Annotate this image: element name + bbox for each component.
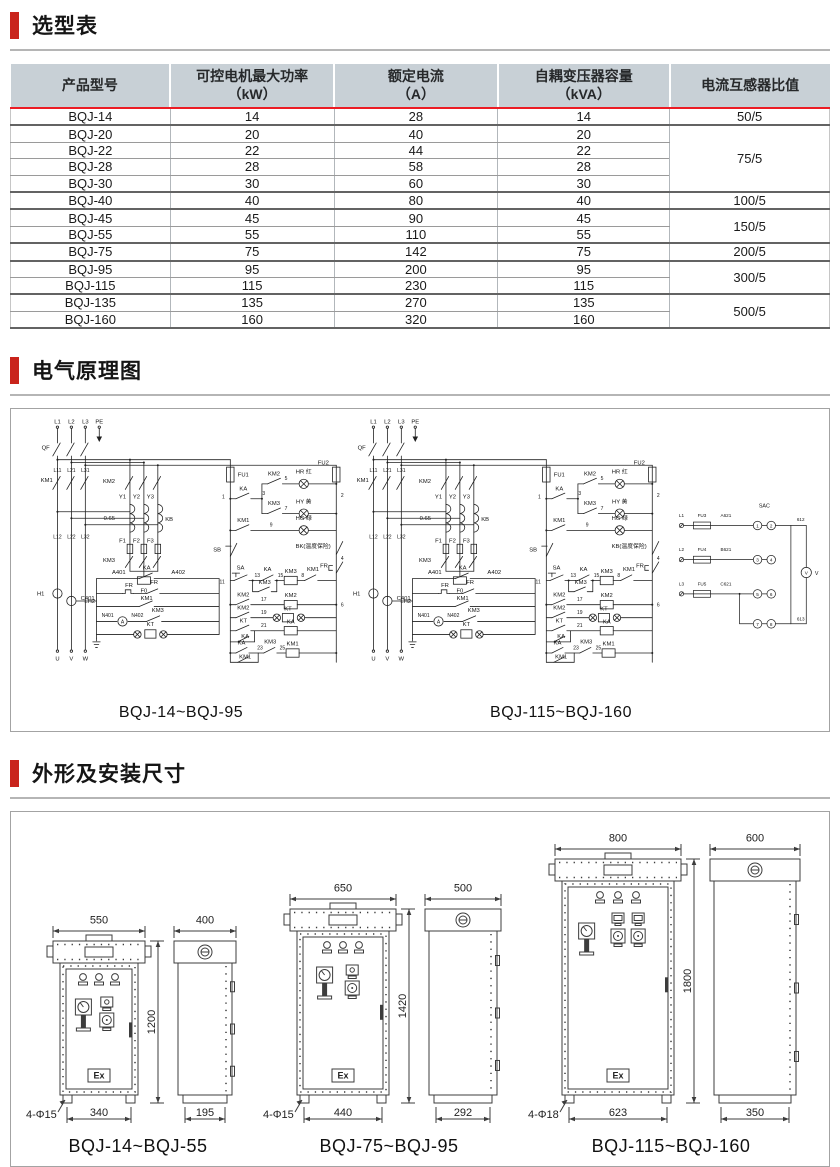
svg-text:KA: KA [557, 634, 565, 640]
svg-text:L1: L1 [679, 513, 685, 518]
cell-capacity: 55 [498, 226, 670, 243]
svg-text:FU5: FU5 [698, 581, 707, 586]
svg-text:FU1: FU1 [238, 473, 249, 479]
cell-capacity: 95 [498, 261, 670, 278]
svg-text:1200: 1200 [146, 1010, 158, 1034]
cell-capacity: 30 [498, 175, 670, 192]
svg-text:6: 6 [770, 592, 773, 597]
svg-text:340: 340 [90, 1107, 108, 1119]
svg-text:623: 623 [609, 1107, 627, 1119]
svg-text:L1: L1 [370, 420, 377, 426]
svg-text:KM3: KM3 [103, 558, 115, 564]
svg-text:KA: KA [554, 641, 562, 647]
cell-capacity: 45 [498, 209, 670, 226]
cell-power: 30 [170, 175, 334, 192]
schematic-caption-right: BQJ-115~BQJ-160 [411, 704, 711, 722]
table-row: BQJ-40 40 80 40 100/5 [11, 192, 830, 209]
svg-text:Y2: Y2 [449, 495, 456, 501]
svg-text:2: 2 [770, 524, 773, 529]
svg-text:2: 2 [657, 493, 660, 499]
svg-text:19: 19 [261, 610, 267, 616]
col-header-capacity: 自耦变压器容量（kVA） [498, 64, 670, 108]
svg-text:KM3: KM3 [468, 608, 480, 614]
svg-text:4-Φ15: 4-Φ15 [26, 1109, 57, 1121]
cell-model: BQJ-115 [11, 277, 171, 294]
svg-text:L12: L12 [53, 535, 62, 541]
svg-text:KM2: KM2 [103, 479, 115, 485]
meter-row-3: L3 FU5 C621 5 6 [679, 581, 776, 598]
svg-text:Y3: Y3 [147, 495, 154, 501]
svg-text:195: 195 [196, 1107, 214, 1119]
svg-text:KM2: KM2 [237, 605, 249, 611]
cell-current: 40 [334, 125, 498, 142]
svg-text:PE: PE [95, 420, 103, 426]
svg-text:KM3: KM3 [259, 580, 271, 586]
svg-text:Y2: Y2 [133, 495, 140, 501]
cell-capacity: 135 [498, 294, 670, 311]
cell-power: 40 [170, 192, 334, 209]
svg-text:3: 3 [578, 491, 581, 497]
starter-schematic: L1 L2 L3 PE QF L11 L21 L31 KM1 KM2 Y1 Y2… [353, 415, 669, 694]
svg-text:440: 440 [334, 1107, 352, 1119]
svg-text:8: 8 [617, 573, 620, 579]
svg-text:C401: C401 [81, 596, 95, 602]
cell-model: BQJ-14 [11, 108, 171, 125]
svg-text:13: 13 [570, 573, 576, 579]
svg-text:KM1: KM1 [287, 642, 299, 648]
selection-table-head: 产品型号 可控电机最大功率（kW） 额定电流（A） 自耦变压器容量（kVA） 电… [11, 64, 830, 108]
cell-power: 28 [170, 159, 334, 175]
svg-text:L31: L31 [397, 468, 406, 474]
red-bar-icon [10, 12, 19, 39]
svg-text:KA: KA [143, 565, 151, 571]
svg-text:B621: B621 [721, 547, 732, 552]
svg-text:A402: A402 [487, 570, 501, 576]
section-dimensions: 外形及安装尺寸 550Ex12003404-Φ15400195 BQJ-14~B… [10, 756, 830, 1167]
svg-text:800: 800 [609, 833, 627, 845]
svg-text:Y1: Y1 [119, 495, 126, 501]
svg-text:KA: KA [238, 641, 246, 647]
svg-text:4: 4 [657, 556, 660, 562]
svg-text:613: 613 [797, 616, 805, 621]
svg-text:HR 红: HR 红 [296, 468, 312, 476]
svg-text:HY 黄: HY 黄 [612, 497, 628, 505]
svg-text:FR: FR [320, 564, 328, 570]
cell-model: BQJ-22 [11, 142, 171, 158]
svg-text:A621: A621 [721, 513, 732, 518]
table-row: BQJ-95 95 200 95 300/5 [11, 261, 830, 278]
table-row: BQJ-75 75 142 75 200/5 [11, 243, 830, 260]
cell-ratio: 100/5 [670, 192, 830, 209]
svg-text:KT: KT [556, 618, 564, 624]
cell-power: 75 [170, 243, 334, 260]
cell-ratio: 50/5 [670, 108, 830, 125]
cell-model: BQJ-160 [11, 311, 171, 328]
svg-text:N401: N401 [102, 613, 114, 619]
dimensions-panel: 550Ex12003404-Φ15400195 BQJ-14~BQJ-55 65… [10, 811, 830, 1167]
svg-text:N401: N401 [418, 613, 430, 619]
schematic-caption-left: BQJ-14~BQJ-95 [41, 704, 321, 722]
section-selection-header: 选型表 [10, 8, 830, 51]
aux-circuit: A401 KA A402 FR FR C401 KM1 A N401 N402 … [392, 565, 535, 647]
svg-text:FR: FR [441, 583, 449, 589]
svg-text:7: 7 [756, 622, 759, 627]
svg-text:SA: SA [237, 565, 245, 571]
svg-text:3: 3 [262, 491, 265, 497]
svg-text:KA: KA [603, 619, 611, 625]
svg-text:L32: L32 [81, 535, 90, 541]
svg-text:L11: L11 [369, 468, 377, 474]
svg-text:KT: KT [147, 622, 155, 628]
svg-text:350: 350 [746, 1107, 764, 1119]
section-title: 外形及安装尺寸 [32, 758, 186, 788]
svg-text:5: 5 [601, 476, 604, 482]
table-row: BQJ-45 45 90 45 150/5 [11, 209, 830, 226]
svg-text:9: 9 [586, 523, 589, 529]
svg-text:KM2: KM2 [268, 472, 280, 478]
schematic-right: L1 L2 L3 PE QF L11 L21 L31 KM1 KM2 Y1 Y2… [353, 415, 669, 699]
cell-capacity: 160 [498, 311, 670, 328]
svg-text:FR: FR [466, 580, 474, 586]
svg-text:3: 3 [756, 558, 759, 563]
cabinet-drawing-slot: 550Ex12003404-Φ15400195 [26, 911, 250, 1134]
cabinet-caption: BQJ-115~BQJ-160 [592, 1136, 751, 1157]
svg-text:400: 400 [196, 915, 214, 927]
cell-current: 142 [334, 243, 498, 260]
svg-text:1420: 1420 [397, 994, 409, 1018]
svg-text:KM1: KM1 [555, 655, 567, 661]
svg-text:0.65: 0.65 [104, 516, 115, 522]
svg-text:KT: KT [600, 606, 608, 612]
cell-current: 270 [334, 294, 498, 311]
svg-text:650: 650 [334, 883, 352, 895]
svg-text:FU1: FU1 [554, 473, 565, 479]
svg-text:KM1: KM1 [237, 518, 249, 524]
svg-text:F2: F2 [449, 538, 456, 544]
svg-text:19: 19 [577, 610, 583, 616]
svg-text:KM1: KM1 [41, 478, 53, 484]
cell-current: 28 [334, 108, 498, 125]
svg-text:23: 23 [573, 645, 579, 651]
svg-text:KM1: KM1 [307, 567, 319, 573]
cell-model: BQJ-75 [11, 243, 171, 260]
svg-text:L11: L11 [53, 468, 61, 474]
svg-text:KM2: KM2 [553, 592, 565, 598]
svg-text:Ex: Ex [337, 1071, 348, 1081]
cell-ratio: 150/5 [670, 209, 830, 243]
power-circuit: L1 L2 L3 PE QF L11 L21 L31 KM1 KM2 Y1 Y2… [37, 420, 336, 663]
table-row: BQJ-135 135 270 135 500/5 [11, 294, 830, 311]
section-dimensions-header: 外形及安装尺寸 [10, 756, 830, 799]
svg-text:N402: N402 [447, 613, 459, 619]
cabinet-group-medium: 650Ex14204404-Φ15500292 BQJ-75~BQJ-95 [263, 879, 515, 1164]
svg-text:KM1: KM1 [553, 518, 565, 524]
svg-text:Y3: Y3 [463, 495, 470, 501]
voltmeter-circuit: L1 FU3 A621 1 2 SAC L2 FU4 B621 [671, 487, 821, 658]
page: 选型表 产品型号 可控电机最大功率（kW） 额定电流（A） 自耦变压器容量（kV… [0, 8, 840, 1167]
svg-text:KM3: KM3 [264, 640, 276, 646]
table-row: BQJ-14 14 28 14 50/5 [11, 108, 830, 125]
cell-current: 60 [334, 175, 498, 192]
cell-ratio: 200/5 [670, 243, 830, 260]
svg-text:KA: KA [287, 619, 295, 625]
cell-power: 115 [170, 277, 334, 294]
svg-text:L12: L12 [369, 535, 378, 541]
svg-text:17: 17 [261, 597, 267, 603]
temp-protect-label: KB(温度保险) [612, 542, 647, 550]
svg-text:LH1: LH1 [37, 591, 44, 597]
cell-capacity: 40 [498, 192, 670, 209]
meter-row-2: L2 FU4 B621 3 4 [679, 547, 776, 564]
svg-text:KM2: KM2 [601, 593, 613, 599]
cabinet-drawing-slot: 650Ex14204404-Φ15500292 [263, 879, 515, 1134]
svg-text:U: U [55, 657, 59, 663]
svg-text:KA: KA [580, 567, 588, 573]
svg-text:25: 25 [280, 645, 286, 651]
cell-current: 200 [334, 261, 498, 278]
cell-current: 90 [334, 209, 498, 226]
svg-text:KM1: KM1 [357, 478, 369, 484]
svg-text:QF: QF [358, 446, 367, 452]
svg-text:8: 8 [770, 622, 773, 627]
svg-text:L21: L21 [383, 468, 392, 474]
svg-text:KM2: KM2 [237, 592, 249, 598]
svg-text:C401: C401 [397, 596, 411, 602]
svg-text:SA: SA [553, 565, 561, 571]
svg-text:F2: F2 [133, 538, 140, 544]
cabinet-caption: BQJ-75~BQJ-95 [319, 1136, 458, 1157]
cell-model: BQJ-28 [11, 159, 171, 175]
svg-text:Y1: Y1 [435, 495, 442, 501]
svg-text:11: 11 [536, 579, 541, 585]
svg-text:KA: KA [264, 567, 272, 573]
svg-text:HG 绿: HG 绿 [296, 514, 312, 522]
cell-model: BQJ-135 [11, 294, 171, 311]
svg-text:23: 23 [257, 645, 263, 651]
svg-text:SB: SB [213, 548, 221, 554]
svg-text:KM3: KM3 [419, 558, 431, 564]
svg-text:600: 600 [746, 833, 764, 845]
cell-power: 55 [170, 226, 334, 243]
svg-text:W: W [399, 657, 405, 663]
cell-capacity: 28 [498, 159, 670, 175]
power-circuit: L1 L2 L3 PE QF L11 L21 L31 KM1 KM2 Y1 Y2… [353, 420, 652, 663]
cabinet-group-small: 550Ex12003404-Φ15400195 BQJ-14~BQJ-55 [26, 911, 250, 1164]
cabinet-caption: BQJ-14~BQJ-55 [68, 1136, 207, 1157]
svg-text:SB: SB [529, 548, 537, 554]
cell-ratio: 500/5 [670, 294, 830, 328]
svg-text:9: 9 [270, 523, 273, 529]
temp-protect-label: BK(温度保险) [296, 542, 331, 550]
svg-text:KM3: KM3 [575, 580, 587, 586]
cell-current: 58 [334, 159, 498, 175]
svg-text:Ex: Ex [612, 1071, 623, 1081]
svg-text:QF: QF [42, 446, 51, 452]
svg-text:1: 1 [222, 495, 225, 501]
svg-text:8: 8 [301, 573, 304, 579]
col-header-current: 额定电流（A） [334, 64, 498, 108]
svg-text:1: 1 [756, 524, 759, 529]
svg-text:L3: L3 [398, 420, 405, 426]
svg-text:FU3: FU3 [698, 513, 707, 518]
section-selection: 选型表 产品型号 可控电机最大功率（kW） 额定电流（A） 自耦变压器容量（kV… [10, 8, 830, 329]
svg-text:15: 15 [278, 573, 284, 579]
page-title: 选型表 [32, 10, 98, 40]
svg-text:FR: FR [150, 580, 158, 586]
cell-power: 95 [170, 261, 334, 278]
svg-text:F1: F1 [119, 538, 126, 544]
svg-text:13: 13 [254, 573, 260, 579]
svg-text:V: V [815, 571, 819, 577]
cell-power: 14 [170, 108, 334, 125]
svg-text:6: 6 [341, 603, 344, 609]
svg-text:SAC: SAC [759, 504, 770, 510]
svg-text:KM3: KM3 [152, 608, 164, 614]
svg-text:KM1: KM1 [239, 655, 251, 661]
svg-text:HY 黄: HY 黄 [296, 497, 312, 505]
cell-model: BQJ-20 [11, 125, 171, 142]
svg-text:KA: KA [239, 486, 247, 492]
svg-text:KA: KA [555, 486, 563, 492]
cell-capacity: 22 [498, 142, 670, 158]
svg-text:KB: KB [165, 517, 173, 523]
svg-text:KM1: KM1 [457, 596, 469, 602]
svg-text:5: 5 [756, 592, 759, 597]
svg-text:FU4: FU4 [698, 547, 707, 552]
svg-text:FU2: FU2 [318, 460, 329, 466]
selection-table: 产品型号 可控电机最大功率（kW） 额定电流（A） 自耦变压器容量（kVA） 电… [10, 64, 830, 329]
svg-text:A401: A401 [428, 570, 442, 576]
cabinet-drawing: 800Ex18006234-Φ18600350 [528, 829, 814, 1129]
svg-text:550: 550 [90, 915, 108, 927]
cell-ratio: 75/5 [670, 125, 830, 192]
svg-text:HG 绿: HG 绿 [612, 514, 628, 522]
cell-capacity: 75 [498, 243, 670, 260]
svg-text:KA: KA [241, 634, 249, 640]
svg-text:KM2: KM2 [584, 472, 596, 478]
svg-text:L22: L22 [67, 535, 76, 541]
section-schematic-header: 电气原理图 [10, 353, 830, 396]
svg-text:KM1: KM1 [623, 567, 635, 573]
cell-model: BQJ-55 [11, 226, 171, 243]
svg-text:KM3: KM3 [584, 501, 596, 507]
col-header-ratio: 电流互感器比值 [670, 64, 830, 108]
svg-text:500: 500 [454, 883, 472, 895]
svg-text:A401: A401 [112, 570, 126, 576]
starter-schematic: L1 L2 L3 PE QF L11 L21 L31 KM1 KM2 Y1 Y2… [37, 415, 353, 694]
svg-text:KB: KB [481, 517, 489, 523]
svg-text:L32: L32 [397, 535, 406, 541]
svg-text:0.65: 0.65 [420, 516, 431, 522]
svg-text:PE: PE [411, 420, 419, 426]
svg-text:FR: FR [125, 583, 133, 589]
svg-text:A402: A402 [171, 570, 185, 576]
cell-power: 22 [170, 142, 334, 158]
svg-text:KM1: KM1 [603, 642, 615, 648]
svg-text:V: V [805, 571, 809, 576]
svg-text:V: V [69, 657, 73, 663]
cell-current: 320 [334, 311, 498, 328]
svg-text:FR: FR [636, 564, 644, 570]
cell-model: BQJ-40 [11, 192, 171, 209]
svg-text:L21: L21 [67, 468, 76, 474]
svg-text:F3: F3 [463, 538, 470, 544]
svg-text:KT: KT [463, 622, 471, 628]
svg-text:L2: L2 [384, 420, 391, 426]
svg-text:4-Φ15: 4-Φ15 [263, 1109, 294, 1121]
svg-text:KT: KT [284, 606, 292, 612]
svg-text:F3: F3 [147, 538, 154, 544]
svg-text:KM3: KM3 [285, 569, 297, 575]
cell-power: 20 [170, 125, 334, 142]
cell-model: BQJ-30 [11, 175, 171, 192]
svg-text:U: U [371, 657, 375, 663]
cell-power: 160 [170, 311, 334, 328]
svg-text:5: 5 [285, 476, 288, 482]
cabinet-group-large: 800Ex18006234-Φ18600350 BQJ-115~BQJ-160 [528, 829, 814, 1164]
red-bar-icon [10, 760, 19, 787]
cell-model: BQJ-95 [11, 261, 171, 278]
voltmeter: 612 613 V V [775, 517, 818, 624]
meter-row-1: L1 FU3 A621 1 2 SAC [679, 504, 776, 530]
svg-text:612: 612 [797, 517, 805, 522]
svg-text:1: 1 [538, 495, 541, 501]
svg-text:KM1: KM1 [141, 596, 153, 602]
svg-text:F1: F1 [435, 538, 442, 544]
red-bar-icon [10, 357, 19, 384]
aux-circuit: A401 KA A402 FR FR C401 KM1 A N401 N402 … [76, 565, 219, 647]
svg-text:L2: L2 [679, 547, 685, 552]
svg-text:L3: L3 [82, 420, 89, 426]
svg-text:L31: L31 [81, 468, 90, 474]
svg-text:KM2: KM2 [553, 605, 565, 611]
svg-text:N402: N402 [131, 613, 143, 619]
svg-text:2: 2 [341, 493, 344, 499]
svg-text:Ex: Ex [93, 1071, 104, 1081]
svg-text:21: 21 [261, 623, 267, 629]
svg-text:292: 292 [454, 1107, 472, 1119]
control-circuit: FU1 FU2 1 KA 3 KM2 5 HR 红 KM3 7 HY 黄 2 K… [213, 460, 344, 663]
svg-text:6: 6 [657, 603, 660, 609]
svg-text:L2: L2 [68, 420, 75, 426]
svg-text:L22: L22 [383, 535, 392, 541]
svg-text:7: 7 [285, 506, 288, 512]
svg-text:FU2: FU2 [634, 460, 645, 466]
svg-text:21: 21 [577, 623, 583, 629]
schematic-left: L1 L2 L3 PE QF L11 L21 L31 KM1 KM2 Y1 Y2… [37, 415, 353, 699]
svg-text:4: 4 [770, 558, 773, 563]
cell-capacity: 115 [498, 277, 670, 294]
selection-table-body: BQJ-14 14 28 14 50/5 BQJ-20 20 40 20 75/… [11, 108, 830, 328]
col-header-power: 可控电机最大功率（kW） [170, 64, 334, 108]
svg-text:7: 7 [601, 506, 604, 512]
table-row: BQJ-20 20 40 20 75/5 [11, 125, 830, 142]
svg-text:11: 11 [220, 579, 225, 585]
svg-text:C621: C621 [720, 581, 731, 586]
svg-text:LH1: LH1 [353, 591, 360, 597]
cell-ratio: 300/5 [670, 261, 830, 295]
svg-text:V: V [385, 657, 389, 663]
svg-text:KM3: KM3 [268, 501, 280, 507]
cell-power: 135 [170, 294, 334, 311]
svg-text:KM3: KM3 [601, 569, 613, 575]
svg-text:A: A [437, 620, 441, 626]
cabinet-drawing-slot: 800Ex18006234-Φ18600350 [528, 829, 814, 1134]
cell-capacity: 14 [498, 108, 670, 125]
col-header-model: 产品型号 [11, 64, 171, 108]
cell-power: 45 [170, 209, 334, 226]
svg-text:KM3: KM3 [580, 640, 592, 646]
